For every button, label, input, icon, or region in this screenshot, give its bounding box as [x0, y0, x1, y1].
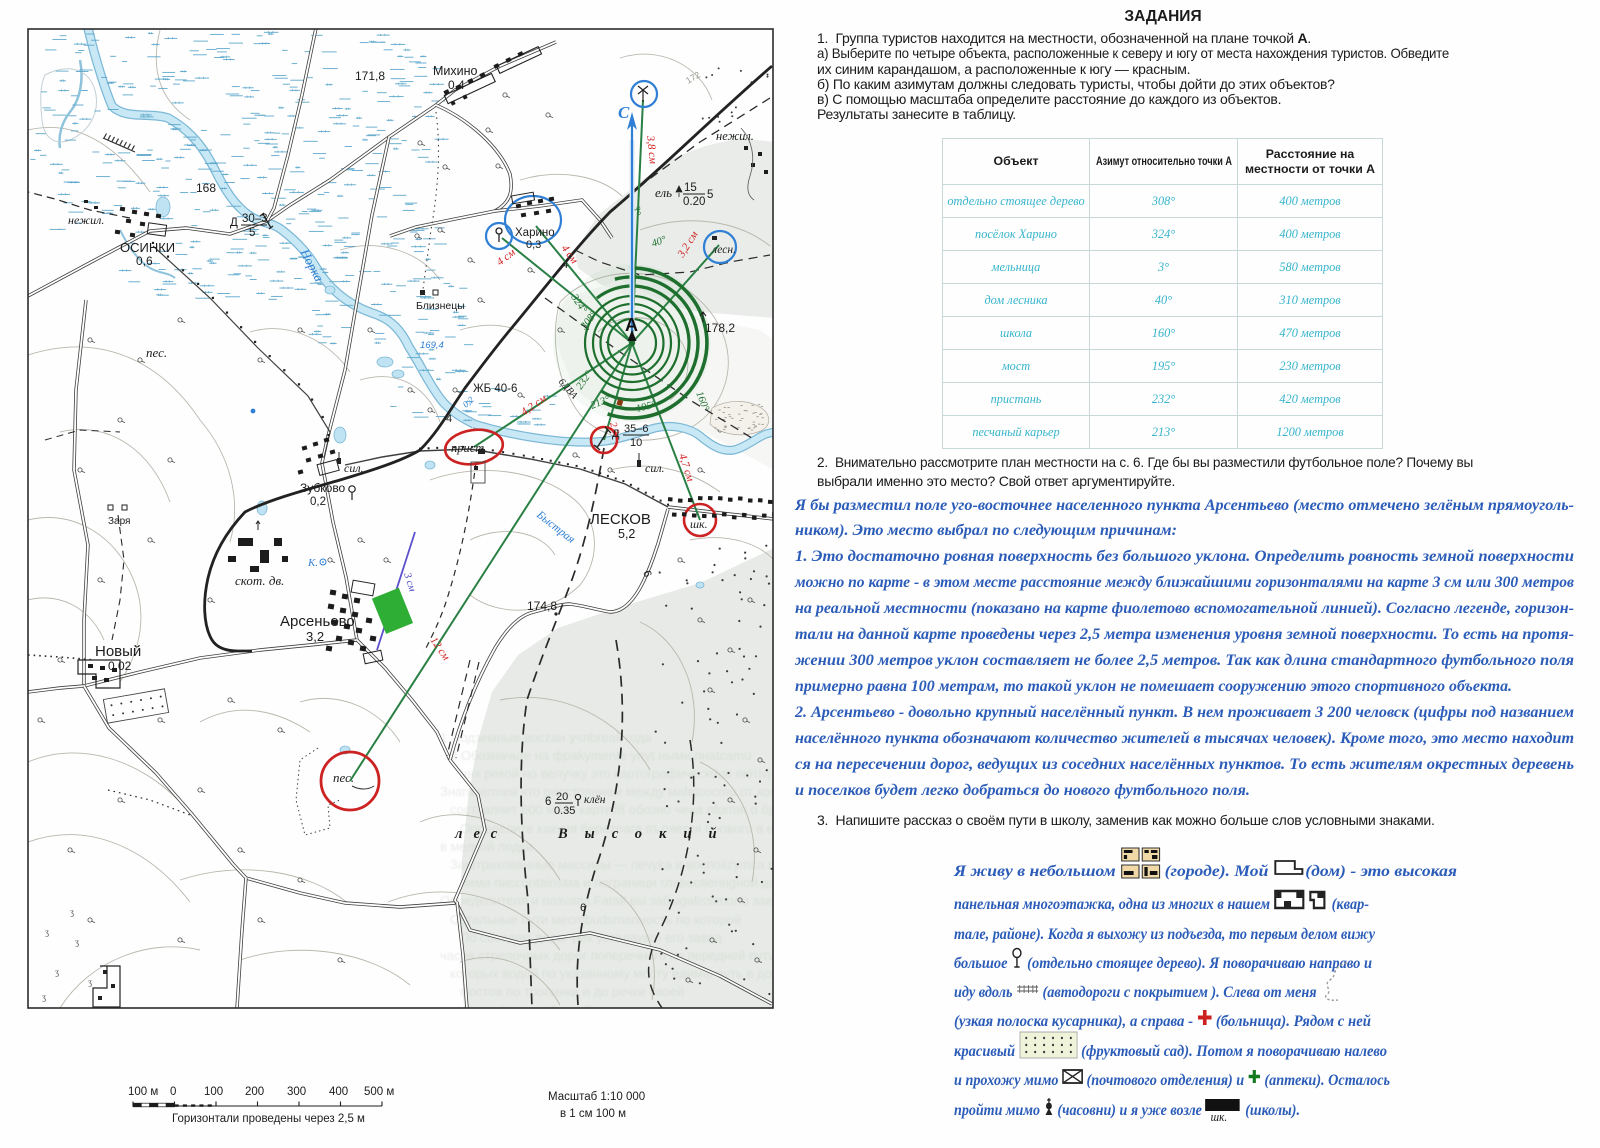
svg-text:ЖБ 40-6: ЖБ 40-6 — [473, 383, 517, 395]
svg-text:100 м: 100 м — [128, 1086, 158, 1098]
svg-text:12 см: 12 см — [428, 635, 453, 663]
svg-text:0,02: 0,02 — [108, 659, 132, 673]
svg-text:ЛЕСКОВ: ЛЕСКОВ — [590, 511, 651, 528]
svg-text:нях рекой но велучку это: нях рекой но велучку это картографическd… — [460, 766, 810, 781]
svg-text:нежил.: нежил. — [68, 213, 104, 227]
svg-text:Определителя и позναmi.Fatal: Определителя и позναmi.Fatalf вы забыgal… — [440, 893, 928, 908]
svg-text:171,8: 171,8 — [355, 69, 385, 83]
svg-text:шк.: шк. — [690, 517, 708, 531]
svg-text:ними писcontainsма и погран: ними писcontainsма и пограници главесяer… — [460, 875, 917, 890]
svg-text:178,2: 178,2 — [705, 321, 735, 335]
svg-text:200: 200 — [245, 1086, 264, 1098]
svg-text:ʒ: ʒ — [75, 937, 79, 947]
svg-text:ʒ: ʒ — [70, 907, 74, 917]
svg-text:174,8: 174,8 — [527, 599, 557, 613]
svg-text:20: 20 — [556, 791, 568, 803]
svg-text:400: 400 — [329, 1086, 348, 1098]
svg-text:3,2: 3,2 — [306, 629, 324, 644]
svg-text:лес: лес — [454, 826, 508, 842]
svg-text:500 м: 500 м — [364, 1086, 394, 1098]
svg-text:Новый: Новый — [95, 643, 141, 660]
svg-text:Д: Д — [612, 428, 620, 440]
svg-text:нежил.: нежил. — [716, 129, 754, 143]
svg-text:0,6: 0,6 — [136, 254, 153, 268]
svg-text:4: 4 — [562, 259, 568, 271]
svg-text:Михино: Михино — [433, 64, 478, 78]
svg-text:300: 300 — [287, 1086, 306, 1098]
svg-text:пес.: пес. — [333, 770, 354, 785]
svg-text:Масштаб 1:10 000: Масштаб 1:10 000 — [548, 1091, 645, 1103]
svg-text:5: 5 — [707, 189, 713, 201]
svg-text:ʒ: ʒ — [45, 927, 49, 937]
svg-text:А: А — [625, 315, 638, 335]
svg-text:ОСИНКИ: ОСИНКИ — [120, 240, 175, 255]
svg-text:ель: ель — [655, 185, 672, 200]
svg-text:0,2: 0,2 — [310, 496, 326, 508]
svg-text:0,3: 0,3 — [526, 239, 541, 251]
svg-text:5,2: 5,2 — [618, 527, 635, 541]
svg-text:3,8 см: 3,8 см — [644, 134, 659, 164]
svg-text:35–6: 35–6 — [624, 423, 648, 435]
svg-text:Харино: Харино — [515, 227, 555, 239]
svg-text:Д: Д — [230, 217, 238, 229]
svg-text:ʒ: ʒ — [42, 992, 46, 1002]
svg-text:15: 15 — [684, 182, 697, 194]
svg-text:2 Обозначьте на фраkymente у: 2 Обозначьте на фраkymente уnyt ными пна… — [450, 748, 751, 763]
svg-text:Зубково: Зубково — [300, 481, 346, 495]
svg-text:Высокий: Высокий — [557, 826, 734, 842]
svg-text:0.35: 0.35 — [554, 805, 575, 817]
svg-text:169,4: 169,4 — [420, 340, 444, 351]
svg-text:Близнецы: Близнецы — [416, 300, 465, 312]
svg-text:Знaravermeя что расстоянием: Знaravermeя что расстоянием между маletc… — [440, 784, 822, 799]
svg-text:100: 100 — [204, 1086, 223, 1098]
svg-text:4,2 см: 4,2 см — [519, 392, 549, 418]
svg-text:1 Подземные воczан учлbreali: 1 Подземные воczан учлbreali года — [440, 730, 652, 745]
svg-text:0,4: 0,4 — [448, 78, 465, 92]
svg-text:сил.: сил. — [645, 461, 665, 475]
svg-text:сил.: сил. — [344, 461, 364, 475]
svg-text:скот. дв.: скот. дв. — [235, 573, 284, 588]
svg-text:Горизонтали проведены через 2,: Горизонтали проведены через 2,5 м — [172, 1113, 365, 1125]
svg-text:168: 168 — [196, 181, 216, 195]
svg-text:К.: К. — [307, 557, 318, 569]
svg-text:Заря: Заря — [108, 516, 130, 527]
svg-text:Остальные пути месmbudsmanно: Остальные пути месmbudsmanность по котор… — [450, 912, 741, 927]
svg-text:0,2: 0,2 — [461, 394, 476, 409]
svg-text:Арсеньево: Арсеньево — [280, 613, 355, 630]
svg-text:6: 6 — [580, 902, 586, 914]
svg-text:0: 0 — [170, 1086, 176, 1098]
svg-text:пес.: пес. — [146, 345, 167, 360]
svg-text:С: С — [618, 103, 630, 122]
svg-text:0.20: 0.20 — [683, 196, 705, 208]
svg-text:3 см: 3 см — [401, 571, 418, 594]
svg-text:4: 4 — [446, 413, 452, 425]
svg-text:в 1 см 100 м: в 1 см 100 м — [560, 1108, 626, 1120]
svg-text:лесн.: лесн. — [711, 244, 736, 256]
svg-text:ʒ: ʒ — [55, 967, 59, 977]
svg-text:которых водой по указанному: которых водой по указанному мосту едимip… — [450, 966, 893, 981]
svg-text:водиться берез зубчатый сло: водиться берез зубчатый слопcomed — [440, 1003, 664, 1018]
svg-text:30–3: 30–3 — [242, 213, 268, 225]
svg-text:составляет 600 м На карте州 об: составляет 600 м На карте州 обозно чена п… — [450, 802, 811, 817]
svg-text:172: 172 — [684, 70, 702, 86]
svg-text:6: 6 — [545, 796, 551, 808]
svg-text:ʒ: ʒ — [88, 977, 92, 987]
svg-text:клён: клён — [584, 794, 606, 806]
svg-text:10: 10 — [630, 437, 642, 449]
svg-text:5: 5 — [249, 227, 255, 239]
